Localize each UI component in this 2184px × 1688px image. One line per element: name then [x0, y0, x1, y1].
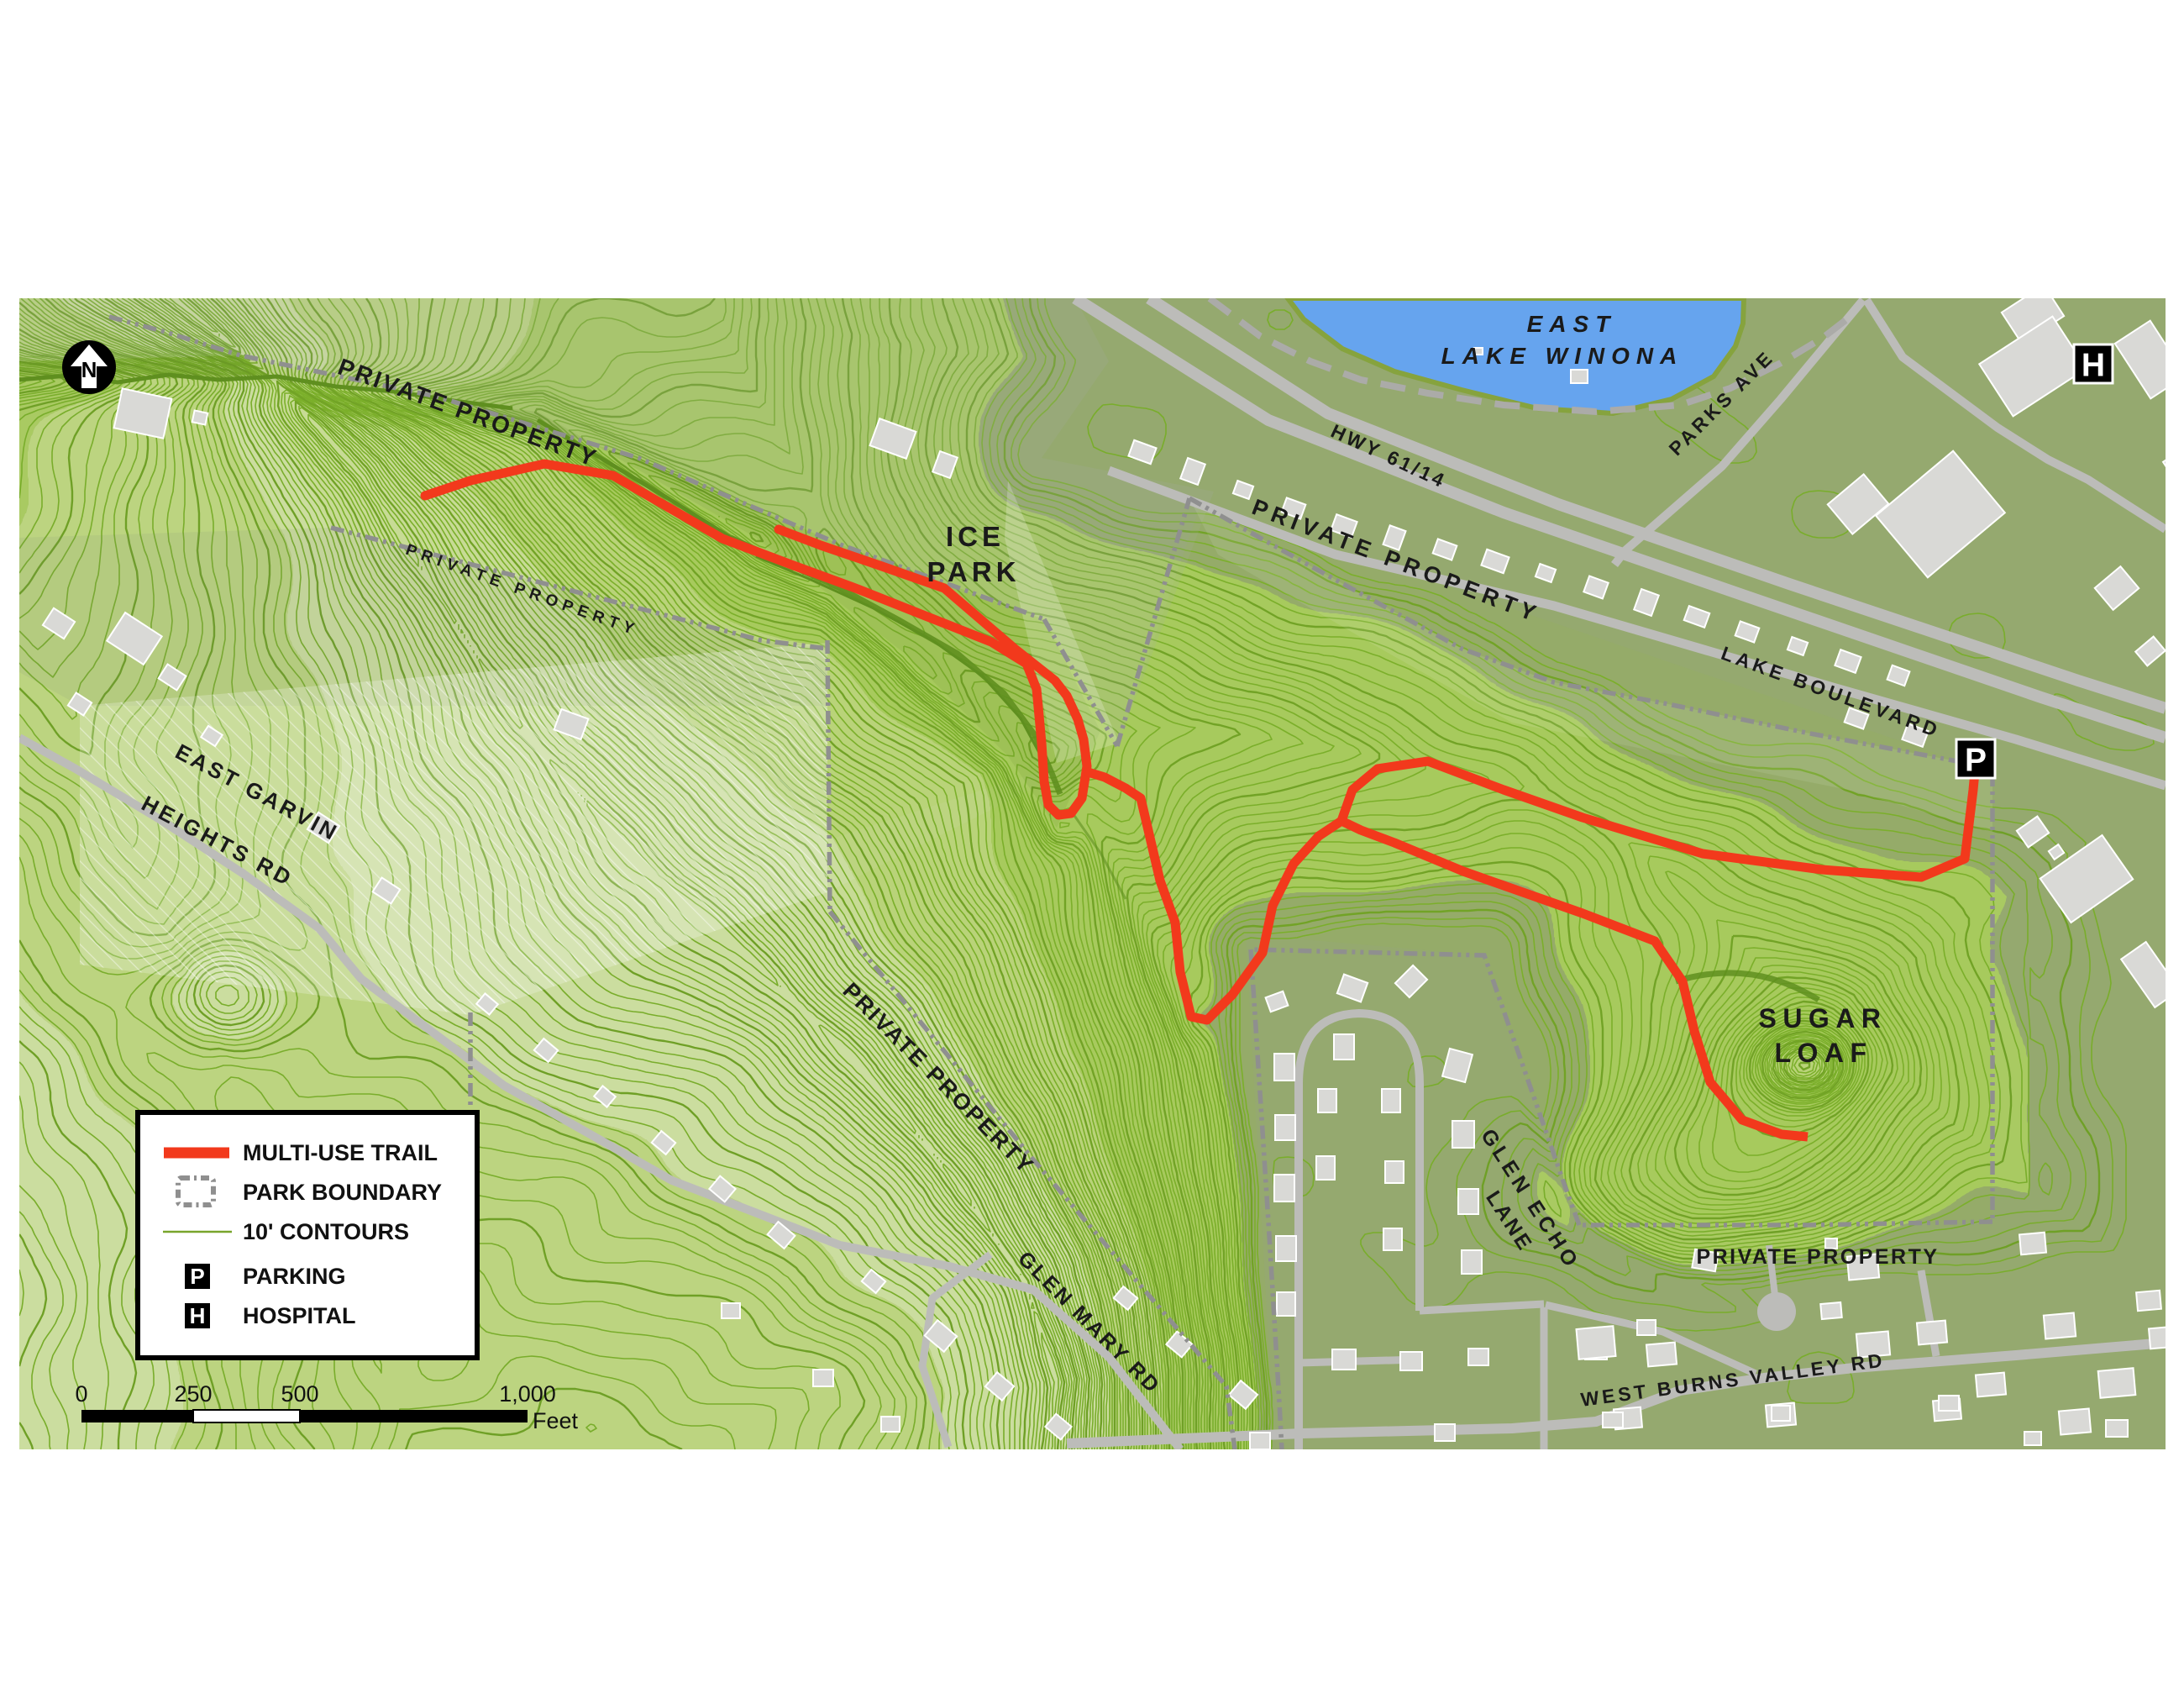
- svg-text:10' CONTOURS: 10' CONTOURS: [243, 1219, 409, 1244]
- svg-text:Feet: Feet: [533, 1408, 579, 1433]
- svg-text:N: N: [81, 357, 97, 382]
- svg-text:PRIVATE PROPERTY: PRIVATE PROPERTY: [1696, 1245, 1939, 1269]
- svg-text:500: 500: [281, 1381, 318, 1407]
- svg-text:MULTI-USE TRAIL: MULTI-USE TRAIL: [243, 1140, 438, 1165]
- svg-text:PARKING: PARKING: [243, 1264, 346, 1289]
- svg-text:HOSPITAL: HOSPITAL: [243, 1303, 356, 1328]
- svg-text:0: 0: [75, 1381, 87, 1407]
- svg-text:P: P: [1965, 743, 1987, 779]
- svg-text:1,000: 1,000: [499, 1381, 556, 1407]
- svg-text:LOAF: LOAF: [1774, 1038, 1872, 1068]
- svg-text:PARK BOUNDARY: PARK BOUNDARY: [243, 1180, 442, 1205]
- svg-text:P: P: [190, 1264, 204, 1289]
- svg-text:EAST: EAST: [1527, 311, 1617, 337]
- svg-text:H: H: [190, 1303, 206, 1328]
- svg-text:ICE: ICE: [946, 521, 1005, 552]
- svg-text:250: 250: [174, 1381, 212, 1407]
- svg-text:PARK: PARK: [927, 556, 1020, 587]
- svg-text:H: H: [2082, 348, 2105, 384]
- svg-text:SUGAR: SUGAR: [1758, 1003, 1887, 1033]
- svg-text:LAKE WINONA: LAKE WINONA: [1441, 343, 1684, 369]
